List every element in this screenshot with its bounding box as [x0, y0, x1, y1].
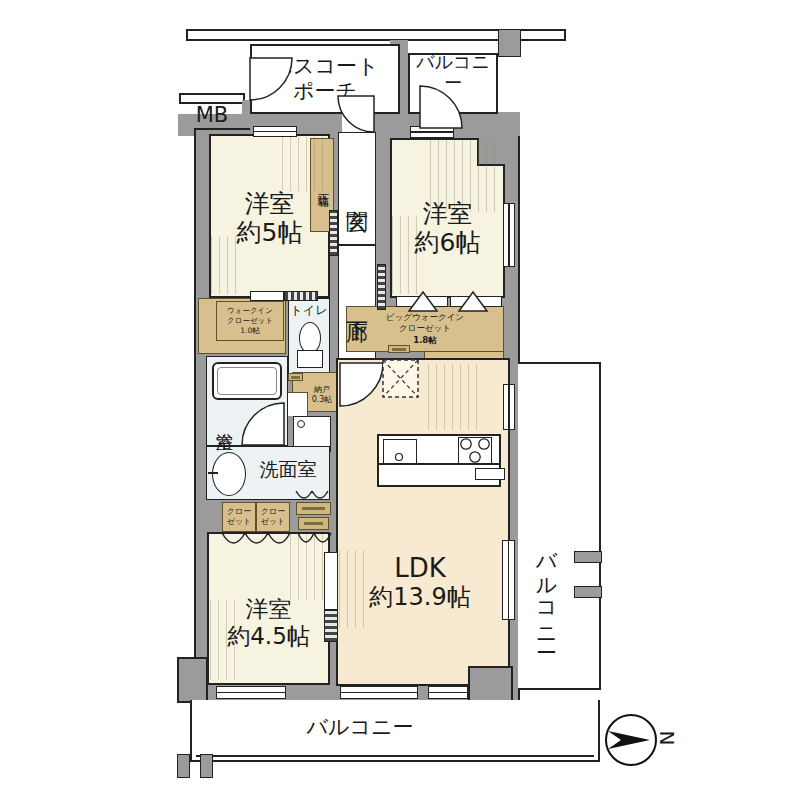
balcony-right-tick2 [574, 586, 602, 598]
washroom-label: 洗面室 [246, 454, 330, 484]
pillar-bottom-right [468, 666, 513, 702]
balcony-top-label: バルコニー [409, 58, 497, 86]
window-bedroom45-bottom [216, 686, 286, 699]
washing-machine-faucet [297, 420, 305, 428]
kitchen-sink [383, 439, 417, 464]
window-ldk-right-upper [503, 384, 515, 430]
window-bedroom6-right [503, 203, 515, 267]
window-bedroom5-top [253, 126, 297, 137]
linen-box-a [296, 502, 331, 515]
floor-plan: N エスコートポーチ バルコニー MB 洋室約5帖 洋室約6帖 下駄箱 玄関 廊… [0, 0, 800, 800]
bedroom6-label: 洋室約6帖 [392, 192, 503, 264]
linen-box-b [298, 517, 329, 530]
kitchen-side-unit [475, 468, 505, 480]
balcony-bottom-rail-line [196, 755, 594, 757]
door-bedroom5-closet-white [250, 291, 284, 301]
window-ldk-right-lower [502, 540, 515, 620]
kitchen-stove [458, 437, 492, 464]
walk-in-closet-label: ウォークインクローゼット1.0帖 [216, 302, 284, 340]
balcony-post-b [200, 754, 213, 778]
window-bedroom6-top [410, 126, 454, 138]
compass-north-label: N [650, 724, 682, 752]
bathroom-label: 浴室 [212, 396, 238, 444]
ldk-label: LDK約13.9帖 [348, 545, 492, 619]
escort-porch-label: エスコートポーチ [252, 50, 398, 108]
entrance-label: 玄関 [340, 148, 374, 240]
balcony-post-a [177, 754, 190, 778]
ldk-room [336, 358, 510, 686]
pillar-bottom-left [177, 657, 208, 703]
bathtub-inner-line [217, 367, 277, 395]
entrance-step-line [338, 244, 376, 246]
shoe-cabinet-label: 下駄箱 [311, 145, 333, 227]
vanity-sink-tick [208, 472, 218, 474]
bedroom5-label: 洋室約5帖 [212, 182, 327, 254]
storage-label: 納戸0.3帖 [300, 380, 344, 410]
wall-top-right-block [498, 29, 521, 57]
window-ldk-bottom-left [340, 686, 418, 699]
big-walk-in-closet-label: ビッグウォークインクローゼット1.8帖 [346, 308, 504, 350]
balcony-bottom-label: バルコニー [290, 712, 430, 742]
floor-stripes [428, 364, 482, 430]
toilet-label: トイレ [288, 302, 330, 318]
mb-label: MB [186, 100, 238, 130]
bedroom6-closet-bar-b [450, 296, 502, 307]
balcony-right-tick1 [574, 551, 602, 563]
bedroom45-label: 洋室約4.5帖 [209, 590, 328, 656]
vanity-sink [212, 452, 246, 496]
window-ldk-bottom-right [428, 686, 468, 699]
balcony-right-label: バルコニー [530, 515, 562, 665]
bedroom6-closet-bar-a [396, 296, 448, 307]
toilet-tank [297, 350, 323, 368]
closet-b-label: クローゼット [256, 504, 290, 530]
door-bedroom6-corridor [377, 264, 386, 310]
closet-a-label: クローゼット [222, 504, 256, 530]
door-bedroom5-closet-track [284, 291, 318, 301]
